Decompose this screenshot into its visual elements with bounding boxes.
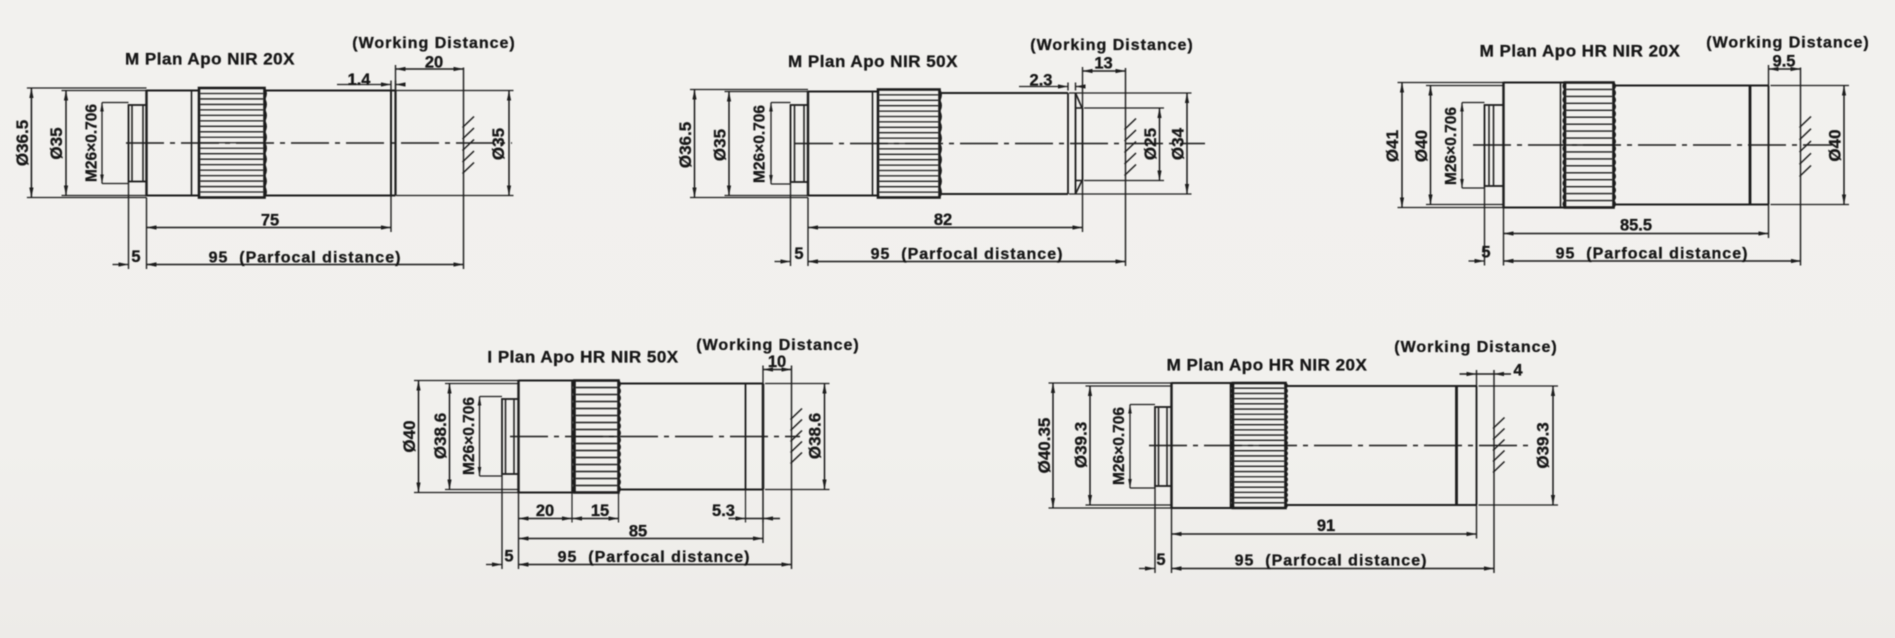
- svg-text:(Working Distance): (Working Distance): [696, 337, 860, 354]
- svg-text:Ø36.5: Ø36.5: [676, 122, 695, 168]
- svg-text:1.4: 1.4: [348, 71, 372, 89]
- svg-text:M26×0.706: M26×0.706: [461, 397, 478, 475]
- svg-text:95 (Parfocal distance): 95 (Parfocal distance): [558, 549, 751, 566]
- svg-text:95 (Parfocal distance): 95 (Parfocal distance): [209, 250, 402, 267]
- svg-text:M26×0.706: M26×0.706: [1443, 107, 1460, 185]
- svg-text:Ø25: Ø25: [1141, 128, 1160, 160]
- svg-text:15: 15: [591, 502, 609, 520]
- svg-text:5: 5: [794, 245, 803, 263]
- svg-text:95 (Parfocal distance): 95 (Parfocal distance): [1235, 553, 1428, 570]
- svg-text:Ø40: Ø40: [400, 420, 419, 452]
- svg-text:M Plan Apo HR NIR 20X: M Plan Apo HR NIR 20X: [1167, 355, 1368, 374]
- svg-text:Ø41: Ø41: [1383, 130, 1402, 162]
- svg-text:5: 5: [1481, 243, 1490, 261]
- svg-text:5.3: 5.3: [712, 502, 735, 520]
- svg-text:5: 5: [504, 547, 513, 565]
- svg-text:85: 85: [629, 522, 647, 540]
- svg-text:Ø38.6: Ø38.6: [805, 413, 824, 459]
- svg-text:20: 20: [425, 53, 443, 71]
- svg-text:Ø35: Ø35: [47, 127, 66, 159]
- svg-text:(Working Distance): (Working Distance): [352, 35, 516, 52]
- svg-text:82: 82: [934, 211, 952, 229]
- svg-text:13: 13: [1094, 54, 1112, 72]
- svg-text:(Working Distance): (Working Distance): [1394, 339, 1558, 356]
- svg-text:Ø35: Ø35: [710, 129, 729, 161]
- svg-text:I Plan Apo HR NIR 50X: I Plan Apo HR NIR 50X: [487, 347, 678, 366]
- svg-text:20: 20: [536, 502, 554, 520]
- svg-text:75: 75: [261, 211, 279, 229]
- svg-text:M Plan Apo NIR 50X: M Plan Apo NIR 50X: [788, 52, 958, 71]
- svg-text:Ø40: Ø40: [1825, 129, 1844, 161]
- svg-text:95 (Parfocal distance): 95 (Parfocal distance): [1556, 246, 1749, 263]
- svg-text:Ø35: Ø35: [489, 128, 508, 160]
- svg-text:9.5: 9.5: [1773, 52, 1796, 70]
- svg-text:M26×0.706: M26×0.706: [1111, 407, 1128, 485]
- svg-text:2.3: 2.3: [1030, 71, 1053, 89]
- svg-text:Ø39.3: Ø39.3: [1071, 422, 1090, 468]
- svg-text:(Working Distance): (Working Distance): [1030, 37, 1194, 54]
- svg-text:Ø40.35: Ø40.35: [1035, 418, 1054, 474]
- svg-text:M Plan Apo HR NIR 20X: M Plan Apo HR NIR 20X: [1480, 41, 1681, 60]
- svg-text:4: 4: [1513, 361, 1523, 379]
- svg-text:M26×0.706: M26×0.706: [751, 105, 768, 183]
- svg-text:95 (Parfocal distance): 95 (Parfocal distance): [871, 246, 1064, 263]
- svg-text:10: 10: [768, 353, 786, 371]
- svg-text:Ø38.6: Ø38.6: [431, 413, 450, 459]
- svg-text:(Working Distance): (Working Distance): [1706, 35, 1870, 52]
- svg-text:91: 91: [1317, 517, 1335, 535]
- svg-text:M Plan Apo NIR 20X: M Plan Apo NIR 20X: [125, 49, 295, 68]
- svg-text:Ø40: Ø40: [1412, 130, 1431, 162]
- svg-text:85.5: 85.5: [1620, 216, 1652, 234]
- svg-text:Ø34: Ø34: [1168, 127, 1187, 160]
- svg-text:5: 5: [131, 248, 140, 266]
- svg-text:5: 5: [1156, 551, 1165, 569]
- svg-text:Ø36.5: Ø36.5: [13, 120, 32, 166]
- svg-text:Ø39.3: Ø39.3: [1533, 422, 1552, 468]
- svg-text:M26×0.706: M26×0.706: [83, 104, 100, 182]
